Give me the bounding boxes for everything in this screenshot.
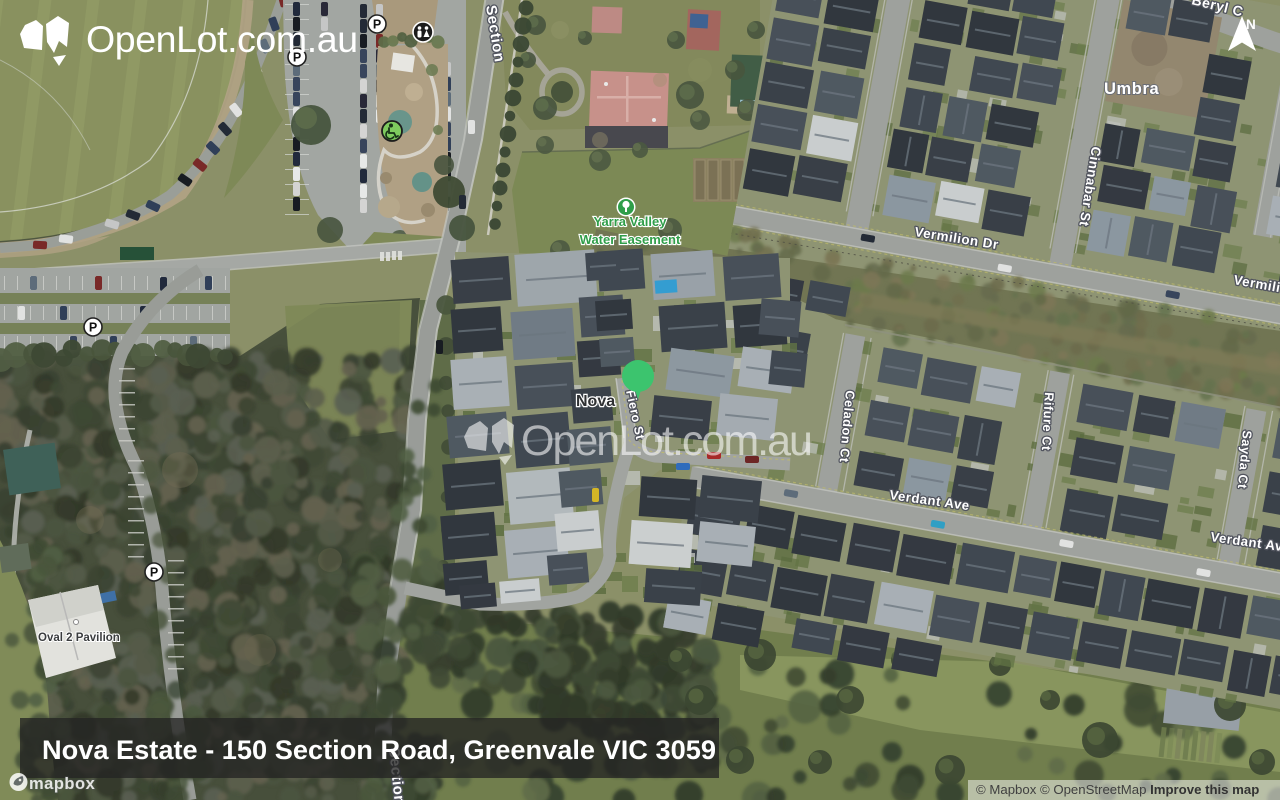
svg-text:P: P	[89, 321, 97, 335]
svg-text:P: P	[150, 566, 158, 580]
svg-text:Water Easement: Water Easement	[580, 232, 681, 247]
svg-text:Umbra: Umbra	[1104, 80, 1159, 98]
svg-text:Nova: Nova	[576, 393, 615, 410]
svg-text:Oval 2 Pavilion: Oval 2 Pavilion	[38, 632, 120, 644]
svg-text:N: N	[1246, 17, 1256, 32]
svg-text:mapbox: mapbox	[29, 775, 96, 793]
svg-text:OpenLot.com.au: OpenLot.com.au	[521, 417, 811, 465]
svg-text:Nova Estate - 150 Section Road: Nova Estate - 150 Section Road, Greenval…	[42, 734, 716, 765]
svg-text:© Mapbox © OpenStreetMap Impro: © Mapbox © OpenStreetMap Improve this ma…	[976, 782, 1259, 797]
svg-text:Rifure Ct: Rifure Ct	[1039, 392, 1057, 451]
svg-text:OpenLot.com.au: OpenLot.com.au	[86, 18, 358, 60]
svg-text:P: P	[373, 18, 381, 32]
svg-text:Yarra Valley: Yarra Valley	[593, 214, 667, 229]
